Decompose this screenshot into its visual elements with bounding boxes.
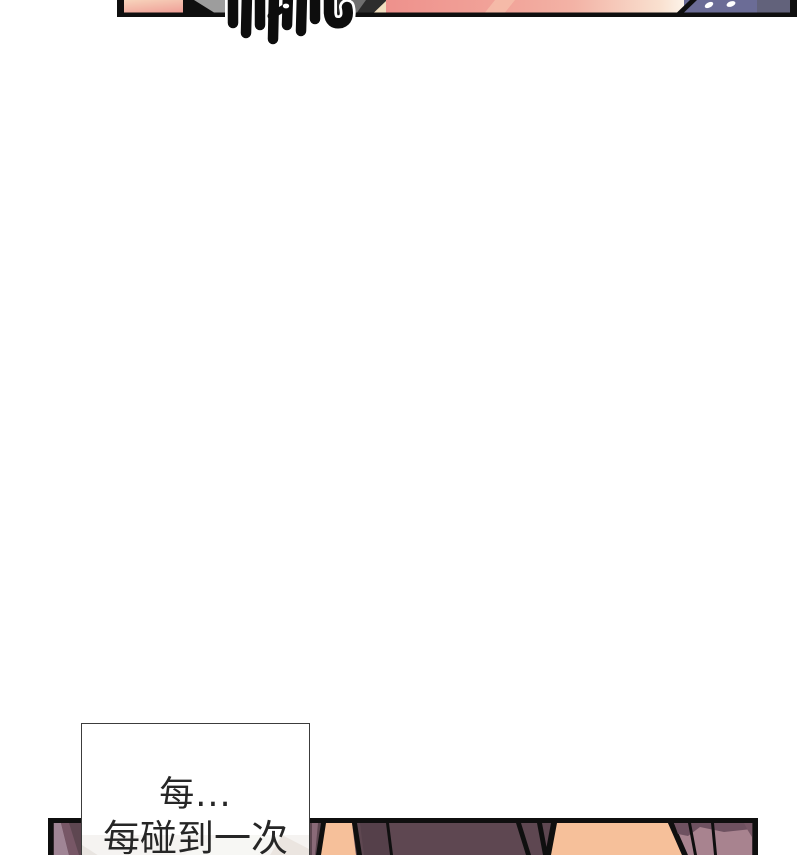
pink-skin-area — [386, 0, 690, 13]
peach-body-area — [548, 823, 682, 855]
bubble-text-line1: 每... — [82, 777, 309, 815]
plum-dark-band — [360, 823, 390, 855]
sfx-loop-hole — [283, 4, 289, 9]
comic-page: 每... 每碰到一次 — [0, 0, 800, 855]
speech-bubble: 每... 每碰到一次 — [81, 723, 310, 855]
top-panel-artwork — [0, 0, 800, 50]
purple-dark-block — [757, 0, 790, 13]
peach-arm-column — [320, 823, 356, 855]
sfx-lettering — [233, 0, 348, 39]
bubble-text-line2: 每碰到一次 — [82, 819, 309, 855]
